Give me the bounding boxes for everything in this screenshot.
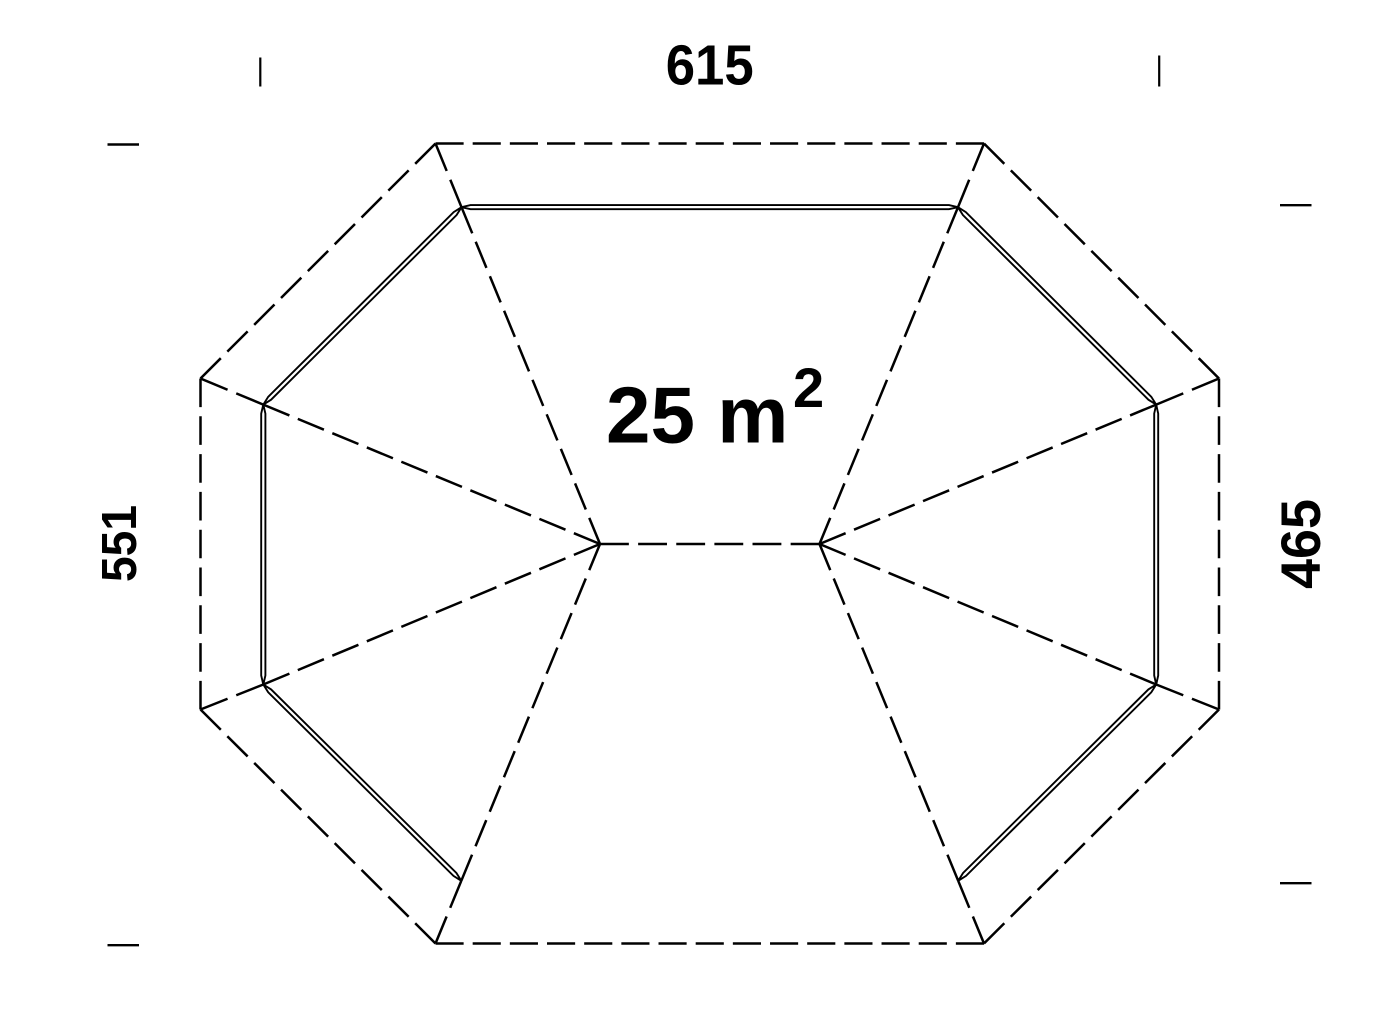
svg-text:551: 551 bbox=[93, 505, 147, 582]
svg-text:465: 465 bbox=[1269, 499, 1332, 589]
svg-text:25 m: 25 m bbox=[606, 371, 788, 460]
svg-text:615: 615 bbox=[666, 34, 754, 98]
svg-text:2: 2 bbox=[793, 356, 824, 419]
